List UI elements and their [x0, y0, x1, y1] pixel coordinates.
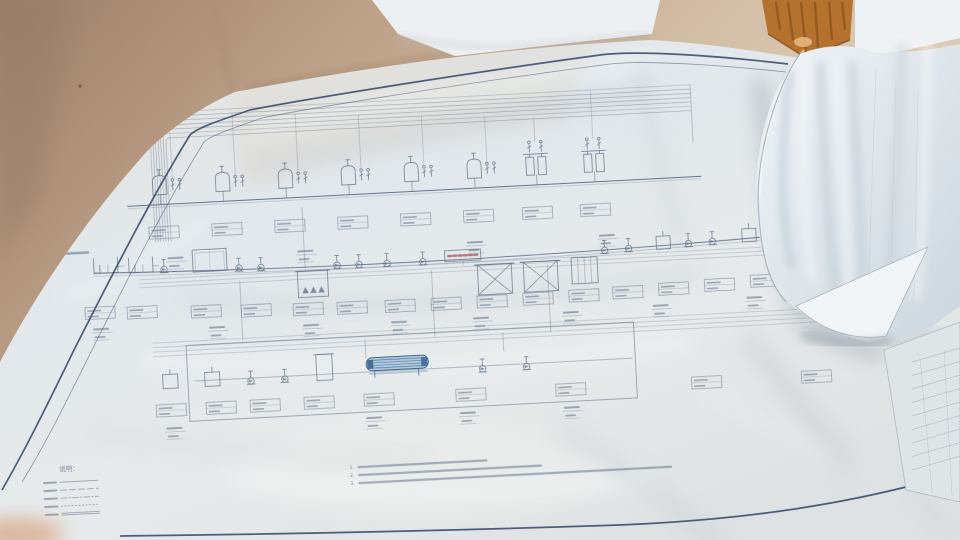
draped-sheet [756, 40, 960, 344]
note-number: 2. [350, 473, 355, 479]
wood-light-stone [794, 37, 812, 47]
legend-header: 说明： [59, 463, 79, 473]
blueprint-photo: 说明：1.2.3. [0, 0, 960, 540]
note-number: 1. [350, 465, 355, 471]
wall-speck [78, 84, 81, 87]
note-number: 3. [350, 481, 355, 487]
scene-svg: 说明：1.2.3. [0, 0, 960, 540]
